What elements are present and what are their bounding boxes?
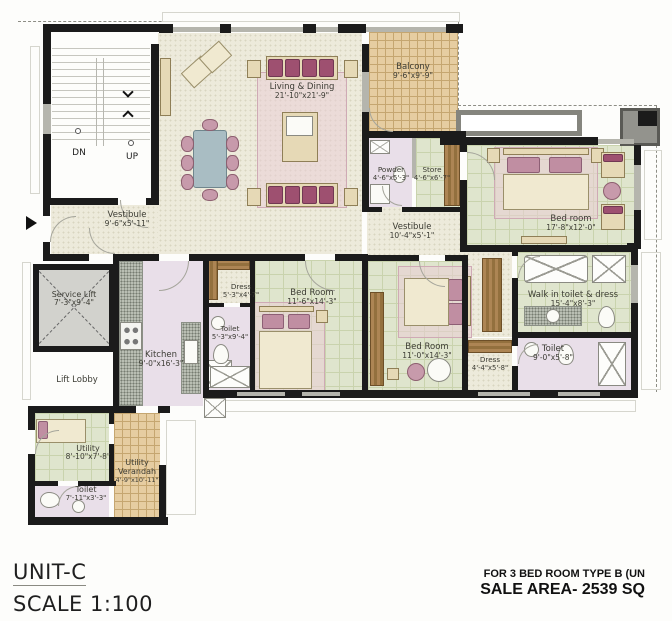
window-sill — [206, 400, 636, 412]
shower-tray — [592, 255, 626, 283]
bed-pillow — [448, 279, 463, 301]
room-name: Lift Lobby — [56, 375, 98, 385]
window-sill — [162, 12, 460, 22]
bed-bench — [521, 236, 567, 244]
window-sill — [30, 46, 40, 194]
window — [362, 72, 369, 112]
stool — [407, 363, 425, 381]
wall-segment — [364, 207, 382, 212]
sale-note-line2: SALE AREA- 2539 SQ — [480, 581, 645, 599]
console-table — [160, 58, 171, 116]
wall-segment — [158, 406, 170, 413]
wall-segment — [159, 24, 173, 33]
wall-segment — [303, 24, 316, 33]
sofa-cushion — [285, 59, 300, 77]
room-dims: 4'-4"x5'-8" — [472, 364, 508, 372]
room-dims: 9'-6"x9'-9" — [393, 72, 433, 81]
room-name: Toilet — [221, 324, 240, 333]
dining-chair — [181, 136, 194, 152]
wardrobe — [468, 340, 512, 353]
floor-plan: DN UP — [0, 0, 672, 621]
dining-table — [193, 130, 227, 188]
sofa-cushion — [268, 59, 283, 77]
wall-segment — [367, 255, 419, 261]
wall-segment — [362, 254, 368, 394]
room-label-toilet-1: Toilet 5'-3"x9'-4" — [212, 325, 248, 342]
stair-marker — [75, 128, 81, 134]
room-dims: 17'-8"x12'-0" — [546, 224, 596, 233]
bed-headboard — [503, 148, 589, 155]
room-label-bedroom-2: Bed Room 11'-6"x14'-3" — [287, 288, 337, 307]
room-name: Dress — [231, 282, 251, 291]
room-dims: 4'-6"x5'-3" — [373, 174, 409, 182]
wall-segment — [512, 250, 518, 256]
shower-tray — [598, 342, 626, 386]
room-label-living: Living & Dining 21'-10"x21'-9" — [270, 82, 335, 101]
room-label-store: Store 4'-6"x6'-7" — [414, 166, 450, 183]
dining-chair — [202, 189, 218, 201]
room-dims: 4'-9"x10'-11" — [116, 477, 159, 485]
room-label-utility: Utility 8'-10"x7'-8" — [66, 444, 111, 462]
wardrobe — [370, 292, 384, 386]
room-label-walkin: Walk in toilet & dress 15'-4"x8'-3" — [528, 290, 618, 309]
round-table — [603, 182, 621, 200]
bed-pillow — [288, 314, 310, 329]
room-dims: 5'-3"x4'-7" — [223, 291, 259, 299]
wall-segment — [220, 24, 231, 33]
wall-segment — [43, 205, 50, 216]
wall-segment — [28, 406, 136, 413]
window-sill — [644, 150, 662, 240]
wall-segment — [43, 198, 118, 205]
room-dims: 15'-4"x8'-3" — [528, 300, 618, 309]
wall-segment — [446, 24, 463, 33]
room-label-toilet-2: Toilet 9'-0"x5'-8" — [533, 344, 573, 363]
window-sill — [22, 262, 31, 400]
column-block — [638, 111, 657, 126]
duct-shaft — [370, 140, 390, 154]
boundary-line — [458, 105, 657, 106]
staircase — [52, 46, 150, 146]
room-dims: 8'-10"x7'-8" — [66, 453, 111, 462]
bed-pillow — [507, 157, 540, 173]
stair-marker — [128, 140, 134, 146]
room-label-vestibule-1: Vestibule 9'-6"x5'-11" — [105, 210, 150, 229]
room-dims: 4'-6"x6'-7" — [414, 174, 450, 182]
room-label-vestibule-2: Vestibule 10'-4"x5'-1" — [390, 222, 435, 241]
dining-chair — [181, 155, 194, 171]
room-dims: 7'-3"x9'-4" — [52, 299, 97, 308]
window — [598, 139, 634, 144]
room-dims: 9'-0"x16'-3" — [139, 360, 184, 369]
bed-headboard — [259, 306, 314, 312]
room-label-lift-lobby: Lift Lobby — [56, 375, 98, 385]
kitchen-sink — [184, 340, 198, 364]
wall-segment — [462, 255, 468, 392]
room-dims: 9'-0"x5'-8" — [533, 354, 573, 363]
room-dims: 21'-10"x21'-9" — [270, 92, 335, 101]
wall-segment — [28, 454, 35, 525]
room-name: Dress — [480, 355, 500, 364]
wall-segment — [28, 406, 35, 430]
side-table — [344, 188, 358, 206]
wall-segment — [362, 131, 369, 212]
armchair-cushion — [603, 154, 623, 162]
sofa-cushion — [302, 59, 317, 77]
wall-segment — [460, 137, 467, 152]
wall-segment — [43, 24, 51, 108]
wall-segment — [28, 481, 58, 486]
room-name: Toilet — [76, 485, 97, 494]
room-label-dress-2: Dress 4'-4"x5'-8" — [472, 356, 508, 373]
dining-chair — [226, 136, 239, 152]
room-label-powder: Powder 4'-6"x5'-3" — [373, 166, 409, 183]
room-dims: 5'-3"x9'-4" — [212, 333, 248, 341]
room-dims: 11'-6"x14'-3" — [287, 298, 337, 307]
room-label-balcony: Balcony 9'-6"x9'-9" — [393, 62, 433, 81]
sofa-cushion — [302, 186, 317, 204]
bed-pillow — [262, 314, 284, 329]
scale-label: SCALE 1:100 — [13, 592, 153, 616]
duct-shaft — [456, 110, 582, 136]
wall-segment — [209, 303, 224, 307]
room-dims: 10'-4"x5'-1" — [390, 232, 435, 241]
toilet-fixture — [598, 306, 615, 328]
wall-segment — [151, 44, 159, 205]
room-label-toilet-3: Toilet 7'-11"x3'-3" — [66, 485, 107, 502]
sofa-cushion — [319, 186, 334, 204]
boundary-line — [458, 21, 459, 111]
window — [478, 392, 530, 396]
stair-down-label: DN — [72, 148, 86, 159]
stair-rail — [103, 58, 104, 146]
wall-segment — [159, 465, 166, 520]
bathtub — [210, 366, 250, 388]
room-name: Utility — [116, 458, 159, 467]
wall-segment — [250, 254, 255, 394]
room-name: Store — [423, 165, 442, 174]
room-name: Powder — [378, 165, 404, 174]
room-label-utility-verandah: Utility Verandah 4'-9"x10'-11" — [116, 458, 159, 485]
wall-segment — [203, 254, 209, 394]
side-table — [247, 188, 261, 206]
window — [302, 392, 340, 396]
stair-rail — [96, 58, 97, 146]
room-label-service-lift: Service Lift 7'-3"x9'-4" — [52, 290, 97, 308]
window — [237, 392, 285, 396]
window — [43, 104, 51, 134]
wall-segment — [43, 134, 51, 205]
wall-segment — [512, 332, 634, 338]
dining-chair — [202, 119, 218, 131]
wall-segment — [240, 303, 250, 307]
wall-segment — [109, 411, 114, 424]
window — [558, 392, 600, 396]
armchair-cushion — [603, 206, 623, 214]
side-table — [344, 60, 358, 78]
side-table — [487, 148, 500, 163]
stove — [120, 322, 142, 350]
unit-title: UNIT-C — [13, 560, 86, 586]
stool — [387, 368, 399, 380]
bed-pillow — [549, 157, 582, 173]
bed — [503, 174, 589, 210]
tv-unit-panel — [286, 116, 313, 136]
bed-pillow — [448, 303, 463, 325]
duct-shaft — [204, 398, 226, 418]
wall-segment — [460, 180, 467, 252]
wall-segment — [338, 24, 366, 33]
room-label-bedroom-3: Bed Room 11'-0"x14'-3" — [402, 342, 452, 361]
stair-up-label: UP — [126, 152, 138, 163]
wall-segment — [43, 254, 89, 261]
sale-note-line1: FOR 3 BED ROOM TYPE B (UN — [484, 568, 645, 580]
wall-segment — [115, 254, 159, 261]
wardrobe — [482, 258, 502, 332]
bed — [259, 331, 312, 389]
dining-chair — [226, 174, 239, 190]
room-dims: 7'-11"x3'-3" — [66, 494, 107, 502]
sofa-cushion — [285, 186, 300, 204]
room-dims: 11'-0"x14'-3" — [402, 352, 452, 361]
window — [631, 265, 638, 303]
entry-arrow-icon — [26, 216, 37, 230]
wall-segment — [460, 245, 638, 252]
room-label-dress-1: Dress 5'-3"x4'-7" — [223, 283, 259, 300]
room-label-bedroom-1: Bed room 17'-8"x12'-0" — [546, 214, 596, 233]
washbasin — [546, 309, 560, 323]
side-table — [316, 310, 328, 323]
dining-chair — [226, 155, 239, 171]
wall-segment — [43, 24, 165, 32]
window — [634, 165, 641, 210]
sofa-cushion — [319, 59, 334, 77]
window-sill — [166, 420, 196, 515]
wall-segment — [362, 44, 369, 72]
room-dims: 9'-6"x5'-11" — [105, 220, 150, 229]
sofa-cushion — [268, 186, 283, 204]
wall-segment — [402, 207, 466, 212]
dining-chair — [181, 174, 194, 190]
side-table — [247, 60, 261, 78]
room-label-kitchen: Kitchen 9'-0"x16'-3" — [139, 350, 184, 369]
toilet-fixture — [213, 344, 229, 364]
wall-segment — [113, 254, 119, 412]
window-sill — [641, 252, 661, 390]
stool — [427, 358, 451, 382]
wall-segment — [28, 517, 168, 525]
